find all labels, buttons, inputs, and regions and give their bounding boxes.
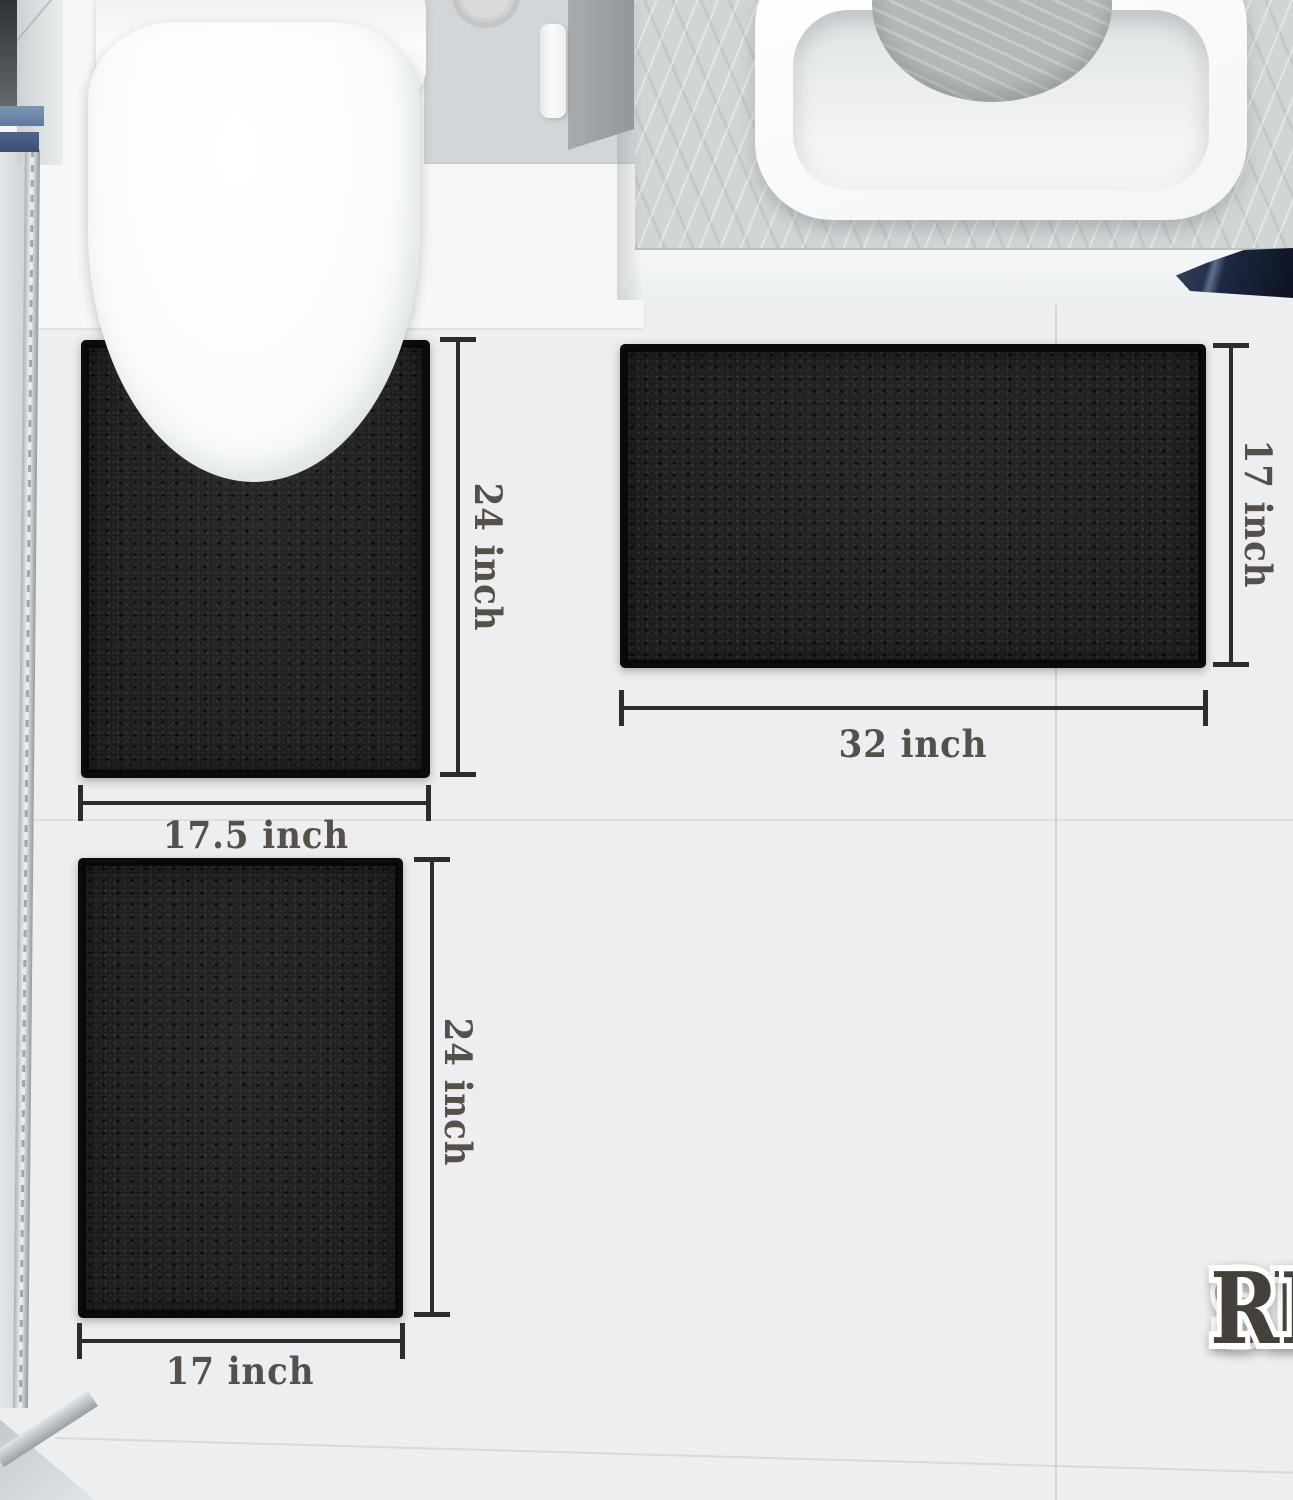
dim-line-large-width [621, 706, 1206, 710]
wall-partition [568, 0, 634, 150]
dim-line-small-height [430, 859, 434, 1315]
dim-line-small-width [79, 1339, 403, 1343]
small-rug [78, 858, 403, 1318]
dim-line-large-height [1229, 345, 1233, 665]
dim-label-contour-width: 17.5 inch [163, 813, 349, 857]
glass-door-hinge [0, 106, 44, 152]
dim-line-contour-height [456, 339, 460, 775]
hinge-upper-bar [0, 106, 44, 126]
dim-line-contour-width [80, 801, 429, 805]
tile-grout-line-horizontal-lower [55, 1437, 1293, 1474]
dim-label-small-width: 17 inch [166, 1349, 315, 1393]
dim-label-large-width: 32 inch [839, 722, 988, 766]
shower-frame-dark-strip [0, 0, 17, 120]
bathroom-size-reference-image: 24 inch 17.5 inch 17 inch 32 inch 24 inc… [0, 0, 1293, 1500]
hinge-lower-bar [0, 132, 39, 152]
large-rug [620, 344, 1206, 668]
dim-label-small-height: 24 inch [436, 1018, 480, 1167]
dim-label-contour-height: 24 inch [466, 483, 510, 632]
dim-label-large-height: 17 inch [1236, 440, 1280, 589]
title-line-2-text: REFERENCE [1210, 1256, 1293, 1363]
toilet-paper-roll [540, 24, 566, 118]
